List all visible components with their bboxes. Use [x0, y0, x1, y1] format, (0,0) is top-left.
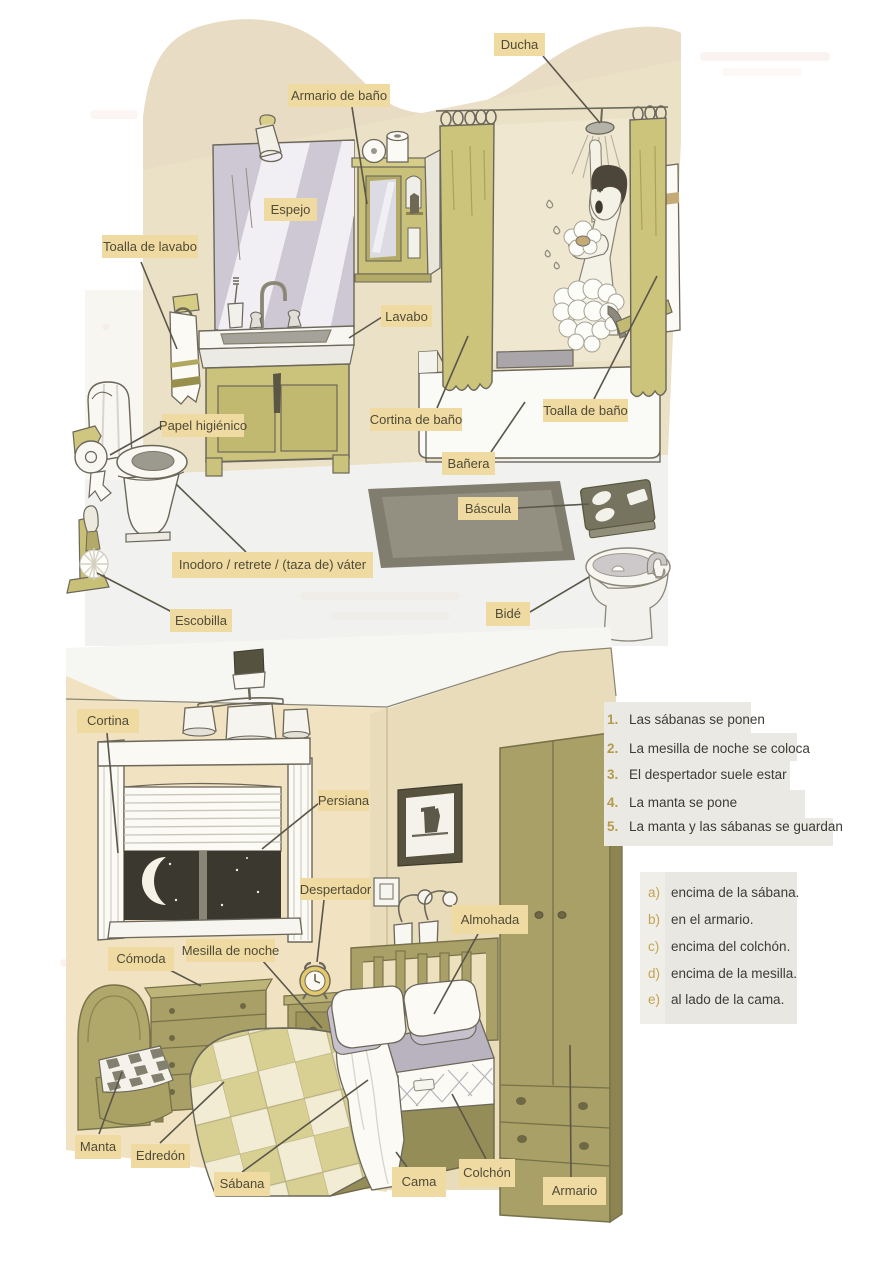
svg-text:Bañera: Bañera: [448, 456, 491, 471]
svg-text:al lado de la cama.: al lado de la cama.: [671, 992, 784, 1007]
svg-text:Cortina: Cortina: [87, 713, 130, 728]
svg-text:Toalla de baño: Toalla de baño: [543, 403, 628, 418]
svg-text:Mesilla de noche: Mesilla de noche: [182, 943, 280, 958]
svg-text:c): c): [648, 939, 659, 954]
svg-text:Báscula: Báscula: [465, 501, 512, 516]
svg-text:Inodoro / retrete / (taza de): Inodoro / retrete / (taza de) váter: [179, 557, 367, 572]
svg-text:Edredón: Edredón: [136, 1148, 185, 1163]
svg-text:Persiana: Persiana: [318, 793, 370, 808]
svg-text:Sábana: Sábana: [220, 1176, 266, 1191]
svg-text:e): e): [648, 992, 660, 1007]
svg-text:Las sábanas se ponen: Las sábanas se ponen: [629, 712, 765, 727]
svg-text:Escobilla: Escobilla: [175, 613, 228, 628]
svg-text:El despertador suele estar: El despertador suele estar: [629, 767, 787, 782]
svg-text:b): b): [648, 912, 660, 927]
svg-text:a): a): [648, 885, 660, 900]
svg-text:Colchón: Colchón: [463, 1165, 511, 1180]
svg-text:en el armario.: en el armario.: [671, 912, 754, 927]
svg-text:Lavabo: Lavabo: [385, 309, 428, 324]
svg-text:Despertador: Despertador: [300, 882, 372, 897]
svg-text:Bidé: Bidé: [495, 606, 521, 621]
svg-text:Cómoda: Cómoda: [116, 951, 166, 966]
svg-text:Espejo: Espejo: [271, 202, 311, 217]
svg-text:La manta se pone: La manta se pone: [629, 795, 737, 810]
svg-text:La manta y las sábanas se guar: La manta y las sábanas se guardan: [629, 819, 843, 834]
svg-text:3.: 3.: [607, 767, 618, 782]
svg-text:1.: 1.: [607, 712, 618, 727]
svg-text:Cortina de baño: Cortina de baño: [370, 412, 463, 427]
svg-text:4.: 4.: [607, 795, 618, 810]
svg-text:encima del colchón.: encima del colchón.: [671, 939, 790, 954]
svg-text:Papel higiénico: Papel higiénico: [159, 418, 247, 433]
svg-text:encima de la sábana.: encima de la sábana.: [671, 885, 799, 900]
svg-text:Cama: Cama: [402, 1174, 437, 1189]
svg-text:Toalla de lavabo: Toalla de lavabo: [103, 239, 197, 254]
svg-text:Armario: Armario: [552, 1183, 598, 1198]
svg-text:Manta: Manta: [80, 1139, 117, 1154]
svg-text:5.: 5.: [607, 819, 618, 834]
svg-text:La mesilla de noche se coloca: La mesilla de noche se coloca: [629, 741, 810, 756]
svg-text:2.: 2.: [607, 741, 618, 756]
svg-text:encima de la mesilla.: encima de la mesilla.: [671, 966, 797, 981]
svg-text:Armario de baño: Armario de baño: [291, 88, 387, 103]
svg-text:Ducha: Ducha: [501, 37, 539, 52]
svg-text:d): d): [648, 966, 660, 981]
svg-text:Almohada: Almohada: [461, 912, 520, 927]
